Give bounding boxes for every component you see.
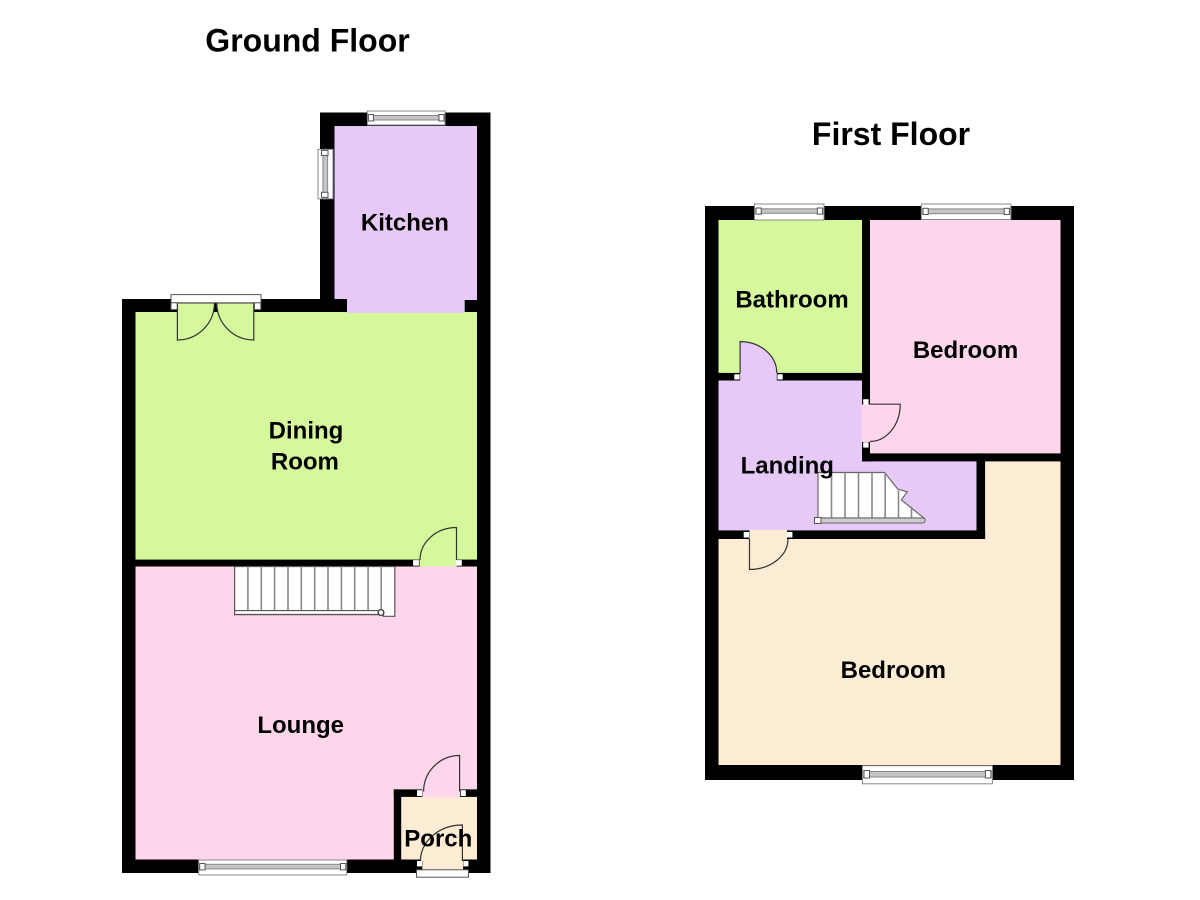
svg-text:Lounge: Lounge [257,712,344,739]
svg-text:Landing: Landing [741,453,834,480]
svg-text:Porch: Porch [404,826,472,853]
svg-text:Bedroom: Bedroom [841,657,946,684]
svg-text:Bedroom: Bedroom [913,337,1018,364]
svg-text:Dining: Dining [269,418,344,445]
svg-text:Ground Floor: Ground Floor [205,23,409,59]
svg-text:Kitchen: Kitchen [361,210,449,237]
svg-text:Bathroom: Bathroom [735,287,848,314]
svg-text:First Floor: First Floor [812,116,970,152]
svg-text:Room: Room [271,449,339,476]
